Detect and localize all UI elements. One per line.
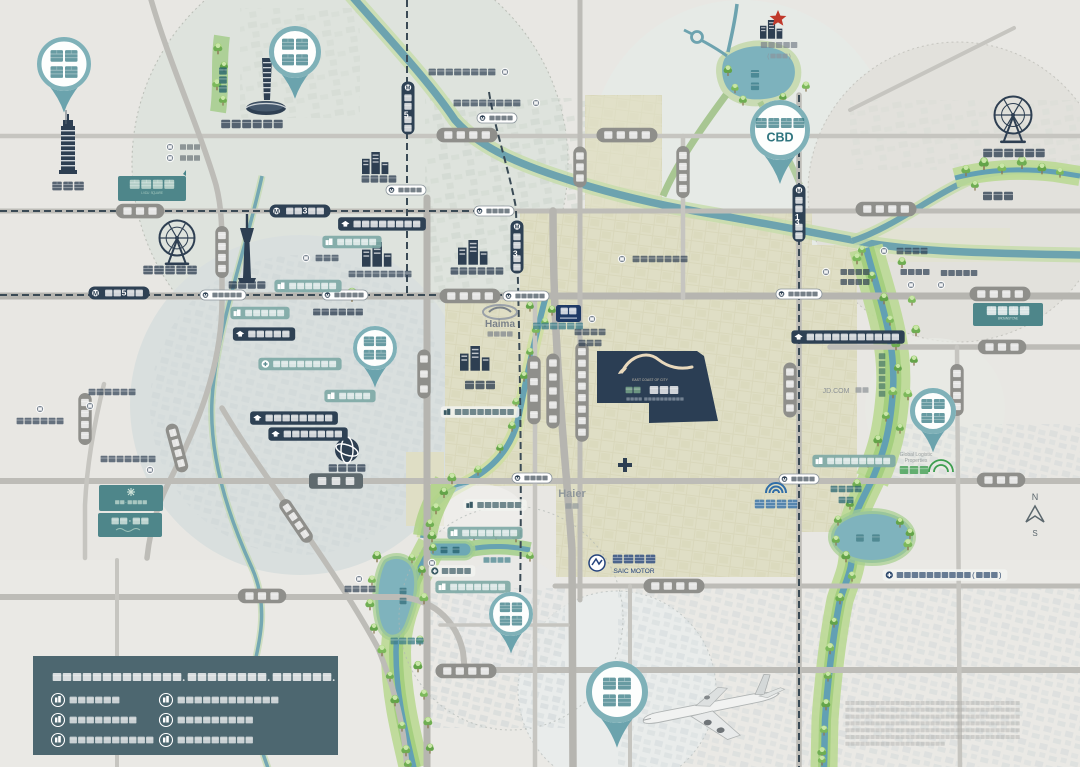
svg-text:M: M bbox=[481, 116, 485, 122]
svg-text:EAST COAST OF CITY: EAST COAST OF CITY bbox=[632, 378, 668, 382]
svg-text:M: M bbox=[780, 292, 784, 298]
svg-text:Haier: Haier bbox=[558, 488, 586, 500]
svg-text:M: M bbox=[390, 188, 394, 194]
svg-text:JD.COM: JD.COM bbox=[823, 388, 850, 395]
svg-text:Properties: Properties bbox=[905, 458, 928, 464]
svg-text:CBD: CBD bbox=[766, 131, 793, 145]
svg-text:5: 5 bbox=[122, 288, 127, 298]
svg-text:N: N bbox=[1032, 492, 1039, 502]
svg-text:M: M bbox=[274, 209, 279, 215]
svg-text:M: M bbox=[507, 294, 511, 300]
svg-text:Haima: Haima bbox=[485, 319, 515, 330]
svg-text:M: M bbox=[783, 477, 787, 483]
svg-text:M: M bbox=[478, 209, 482, 215]
svg-text:S: S bbox=[1032, 529, 1037, 538]
svg-text:M: M bbox=[406, 86, 411, 92]
svg-text:M: M bbox=[326, 293, 330, 299]
svg-text:SAIC MOTOR: SAIC MOTOR bbox=[613, 568, 654, 575]
svg-text:): ) bbox=[789, 54, 791, 60]
svg-text:M: M bbox=[204, 293, 208, 299]
svg-text:M: M bbox=[515, 225, 520, 231]
svg-text:3: 3 bbox=[303, 206, 308, 216]
svg-text:M: M bbox=[797, 188, 802, 194]
svg-text:M: M bbox=[516, 476, 520, 482]
svg-text:M: M bbox=[93, 291, 98, 297]
svg-text:(: ( bbox=[767, 54, 769, 60]
